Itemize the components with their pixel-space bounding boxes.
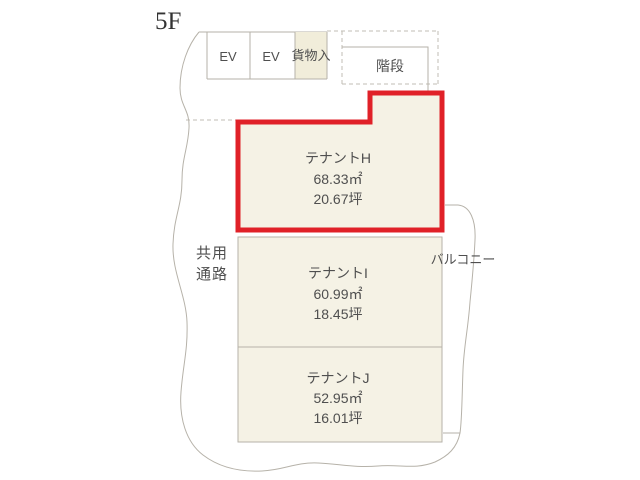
tenant-h-text: テナントH 68.33㎡ 20.67坪 (305, 150, 371, 207)
cargo-label: 貨物入 (291, 48, 330, 63)
tenant-i-name: テナントI (308, 265, 368, 281)
tenant-h-sqm: 68.33㎡ (313, 171, 362, 187)
tenant-j-sqm: 52.95㎡ (313, 390, 362, 406)
tenant-j-text: テナントJ 52.95㎡ 16.01坪 (307, 370, 370, 426)
tenant-h-tsubo: 20.67坪 (313, 191, 362, 207)
tenant-j-tsubo: 16.01坪 (313, 410, 362, 426)
balcony-label: バルコニー (431, 252, 496, 267)
stairs-label: 階段 (376, 58, 404, 74)
tenant-i-tsubo: 18.45坪 (313, 306, 362, 322)
elevator2-label: EV (262, 49, 280, 64)
tenant-i-text: テナントI 60.99㎡ 18.45坪 (308, 265, 368, 322)
tenant-h-name: テナントH (305, 150, 371, 166)
floorplan-5f: 5F EV EV 貨物入 階段 共用 通路 バルコニー テナントH 68.33㎡… (0, 0, 640, 480)
corridor-label-line2: 通路 (196, 266, 228, 283)
elevator1-label: EV (219, 49, 237, 64)
floorplan-canvas: 5F EV EV 貨物入 階段 共用 通路 バルコニー テナントH 68.33㎡… (0, 0, 640, 480)
floor-label: 5F (155, 8, 181, 35)
tenant-i-sqm: 60.99㎡ (313, 286, 362, 302)
tenant-j-name: テナントJ (307, 370, 370, 386)
corridor-label-line1: 共用 (196, 245, 228, 262)
